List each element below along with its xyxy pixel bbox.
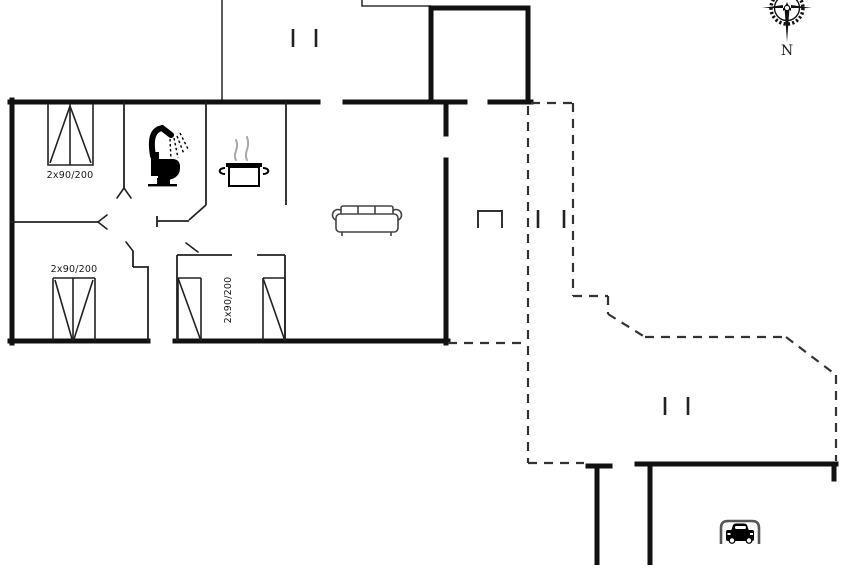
bed-top-left-label: 2x90/200 — [47, 170, 94, 181]
floorplan-canvas: 2x90/200 2x90/200 2x90/200 — [0, 0, 848, 569]
terrace-dashed-outline — [448, 103, 836, 463]
bed-bottom-middle-label: 2x90/200 — [223, 277, 234, 324]
bed-bottom-middle-left — [178, 278, 201, 341]
bed-bottom-left-label: 2x90/200 — [51, 264, 98, 275]
car-icon — [721, 521, 759, 544]
cooking-pot-icon — [220, 137, 269, 186]
bedroom2-right-wall — [133, 267, 148, 341]
annex-walls — [431, 8, 528, 102]
table-bracket — [478, 211, 502, 228]
door-ticks — [98, 188, 198, 252]
bath-chamfer-wall — [189, 205, 206, 220]
sofa-icon — [333, 206, 402, 236]
carport-walls — [588, 464, 836, 565]
compass-north-label: N — [781, 43, 793, 59]
toilet-icon — [148, 152, 180, 186]
floorplan-svg: 2x90/200 2x90/200 2x90/200 — [0, 0, 848, 565]
bed-bottom-left — [53, 278, 95, 341]
compass-rose-icon: N — [762, 0, 812, 59]
site-lines — [222, 0, 431, 101]
bed-bottom-middle-right — [263, 278, 285, 341]
bed-top-left — [48, 104, 93, 165]
interior-walls — [10, 102, 286, 341]
steam-lines — [235, 137, 248, 160]
car-silhouette — [726, 524, 754, 544]
